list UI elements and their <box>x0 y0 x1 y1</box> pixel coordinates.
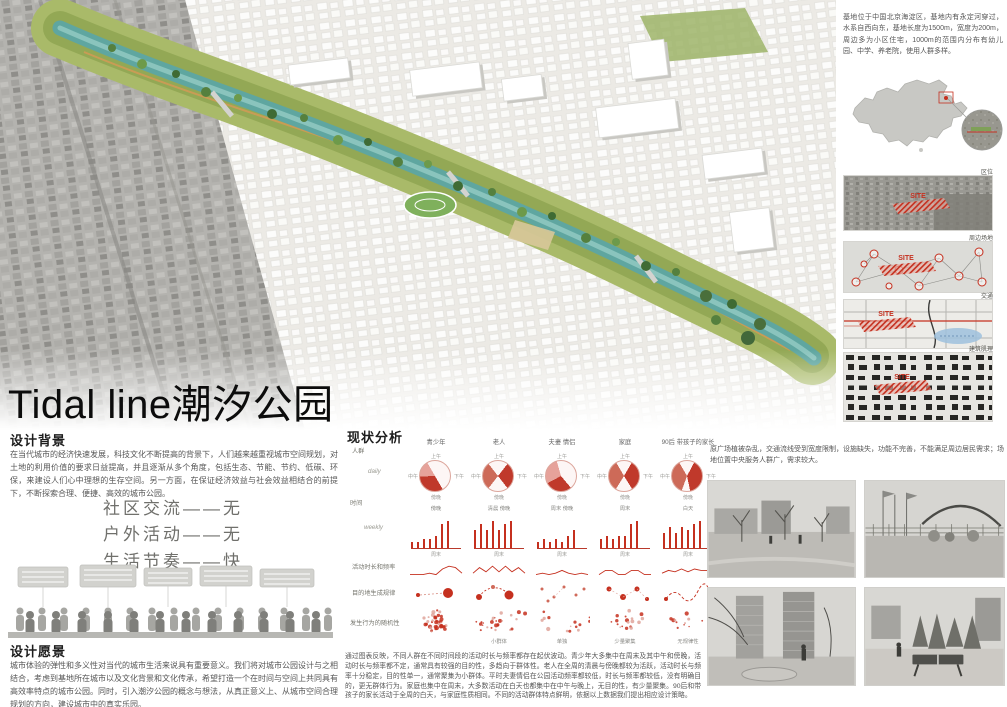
pie-time-label: 上午 <box>431 453 441 460</box>
weekly-bar-chart <box>474 518 524 549</box>
weekly-bar-chart <box>663 518 713 549</box>
analysis-heading: 现状分析 <box>347 427 403 446</box>
group-label: 家庭 <box>594 440 656 447</box>
pie-time-label: 下午 <box>517 473 527 480</box>
randomness-scatter <box>408 606 464 643</box>
site-label: SITE <box>878 311 894 318</box>
bar <box>636 521 638 548</box>
row-label-weekly: weekly <box>364 524 383 531</box>
pie-time-label: 上午 <box>620 453 630 460</box>
pie-time-label: 傍晚 <box>683 494 693 501</box>
bar <box>537 542 539 548</box>
bar <box>504 524 506 548</box>
duration-line-chart <box>534 560 590 583</box>
pie-time-label: 傍晚 <box>431 494 441 501</box>
scatter-caption: 单独 <box>531 637 593 645</box>
bar <box>447 521 449 548</box>
bar <box>618 536 620 548</box>
map-satellite: SITE <box>843 175 993 231</box>
site-photo-towers <box>707 587 856 686</box>
page-title: Tidal line潮汐公园 <box>8 372 334 430</box>
pie <box>482 460 514 492</box>
pie-time-label: 傍晚 <box>557 494 567 501</box>
scatter-caption: 少量聚集 <box>594 637 656 645</box>
row-label-daily: daily <box>368 468 381 475</box>
map-figure-ground: SITE <box>843 352 993 422</box>
china-location-map <box>843 70 1005 162</box>
analysis-summary: 通过图表反映，不同人群在不同时间段的活动时长与频率都存在起伏波动。青少年大多集中… <box>345 652 701 701</box>
pie-time-label: 傍晚 <box>620 494 630 501</box>
pie-time-label: 傍晚 <box>494 494 504 501</box>
analysis-column: 老人上午下午傍晚中午清晨 傍晚周末小群体 <box>468 440 530 650</box>
slogan-community: 社区交流——无 <box>103 496 243 522</box>
group-label: 夫妻 情侣 <box>531 440 593 447</box>
bar <box>441 524 443 548</box>
map-traffic: SITE <box>843 299 993 349</box>
pie-time-label: 上午 <box>494 453 504 460</box>
vision-body: 城市体验的弹性和多义性对当代的城市生活来说具有重要意义。我们将对城市公园设计与之… <box>10 660 338 707</box>
china-outline <box>853 80 967 146</box>
site-condition-note: 原广场植被杂乱，交通流线受到宽度限制，设施缺失，功能不完善，不能满足周边居民需求… <box>710 444 1004 467</box>
bar <box>669 527 671 548</box>
bar <box>510 521 512 548</box>
round-planter <box>742 667 797 681</box>
bar <box>567 536 569 548</box>
weekly-bar-chart <box>600 518 650 549</box>
bar <box>480 524 482 548</box>
pie-time-label: 中午 <box>597 473 607 480</box>
pie-time-label: 下午 <box>706 473 716 480</box>
weekly-bar-chart <box>411 518 461 549</box>
row-label-people: 人群 <box>352 446 364 455</box>
bar <box>429 539 431 548</box>
bar <box>561 542 563 548</box>
daily-pie-chart: 上午下午傍晚中午 <box>605 453 645 501</box>
masterplan-rendering <box>0 0 836 430</box>
crowd-silhouette-graphic <box>8 563 333 639</box>
daily-pie-chart: 上午下午傍晚中午 <box>479 453 519 501</box>
bar <box>486 530 488 548</box>
site-photo-lawn <box>707 480 856 578</box>
pie-time-label: 中午 <box>534 473 544 480</box>
river-line <box>929 300 936 348</box>
site-photo-pingpong <box>864 587 1005 686</box>
site-photo-fence <box>864 480 1005 578</box>
pie-time-label: 下午 <box>454 473 464 480</box>
bar <box>687 530 689 548</box>
weekend-note: 周末 <box>594 551 656 558</box>
background-body: 在当代城市的经济快速发展，科技文化不断提高的背景下，人们越来越重视城市空间规划，… <box>10 449 338 501</box>
bar <box>498 530 500 548</box>
site-intro-text: 基地位于中国北京海淀区，基地内有永定河穿过，水系自西向东，基地长度为1500m，… <box>843 12 1003 57</box>
pie-time-label: 中午 <box>660 473 670 480</box>
site-label: SITE <box>898 255 914 262</box>
bar <box>555 539 557 548</box>
bar <box>681 527 683 548</box>
analysis-column: 家庭上午下午傍晚中午周末周末少量聚集 <box>594 440 656 650</box>
site-band <box>858 317 916 332</box>
bar <box>600 539 602 548</box>
title-cn: 潮汐公园 <box>172 383 334 427</box>
pie-caption: 周末 <box>594 504 656 512</box>
daily-pie-chart: 上午下午傍晚中午 <box>542 453 582 501</box>
row-label-destination: 目的地生成规律 <box>352 588 395 597</box>
row-label-time: 时间 <box>350 498 362 507</box>
bar <box>492 521 494 548</box>
scatter-caption: 小群体 <box>468 637 530 645</box>
pie-caption: 周末 傍晚 <box>531 504 593 512</box>
analysis-chart-grid: 青少年上午下午傍晚中午傍晚周末老人上午下午傍晚中午清晨 傍晚周末小群体夫妻 情侣… <box>405 440 725 650</box>
bar <box>693 524 695 548</box>
map-surrounding-nodes: SITE <box>843 241 993 293</box>
daily-pie-chart: 上午下午傍晚中午 <box>668 453 708 501</box>
bar <box>612 539 614 548</box>
duration-line-chart <box>408 560 464 583</box>
pie-time-label: 上午 <box>557 453 567 460</box>
bar <box>699 521 701 548</box>
weekly-bar-chart <box>537 518 587 549</box>
pie <box>545 460 577 492</box>
tower <box>736 596 763 659</box>
analysis-column: 青少年上午下午傍晚中午傍晚周末 <box>405 440 467 650</box>
vision-heading: 设计愿景 <box>10 641 66 660</box>
site-label: SITE <box>894 374 910 381</box>
weekend-note: 周末 <box>405 551 467 558</box>
pie <box>671 460 703 492</box>
weekend-note: 周末 <box>531 551 593 558</box>
pie-time-label: 中午 <box>471 473 481 480</box>
pie-time-label: 下午 <box>643 473 653 480</box>
daily-pie-chart: 上午下午傍晚中午 <box>416 453 456 501</box>
duration-line-chart <box>597 560 653 583</box>
slogan-outdoor: 户外活动——无 <box>103 522 243 548</box>
weekend-note: 周末 <box>468 551 530 558</box>
pie-time-label: 中午 <box>408 473 418 480</box>
row-label-randomness: 发生行为的随机性 <box>350 618 400 627</box>
bar <box>543 539 545 548</box>
bar <box>474 530 476 548</box>
pie-time-label: 上午 <box>683 453 693 460</box>
row-label-duration: 活动时长和频率 <box>352 562 395 571</box>
group-label: 老人 <box>468 440 530 447</box>
bar <box>606 536 608 548</box>
analysis-column: 夫妻 情侣上午下午傍晚中午周末 傍晚周末单独 <box>531 440 593 650</box>
sports-field <box>404 192 456 218</box>
group-label: 青少年 <box>405 440 467 447</box>
site-label: SITE <box>910 193 926 200</box>
pie <box>608 460 640 492</box>
bar <box>417 542 419 548</box>
bar <box>675 533 677 548</box>
bar <box>663 533 665 548</box>
pie <box>419 460 451 492</box>
bar <box>630 524 632 548</box>
pie-time-label: 下午 <box>580 473 590 480</box>
site-band <box>878 261 936 276</box>
bar <box>411 542 413 548</box>
duration-line-chart <box>471 560 527 583</box>
background-heading: 设计背景 <box>10 430 66 449</box>
bar <box>435 536 437 548</box>
presentation-board: Tidal line潮汐公园 基地位于中国北京海淀区，基地内有永定河穿过，水系自… <box>0 0 1007 707</box>
bar <box>549 542 551 548</box>
title-en: Tidal line <box>8 383 172 427</box>
pie-caption: 傍晚 <box>405 504 467 512</box>
beijing-dot <box>944 96 948 100</box>
bar <box>573 530 575 548</box>
pie-caption: 清晨 傍晚 <box>468 504 530 512</box>
bar <box>624 536 626 548</box>
bar <box>423 539 425 548</box>
